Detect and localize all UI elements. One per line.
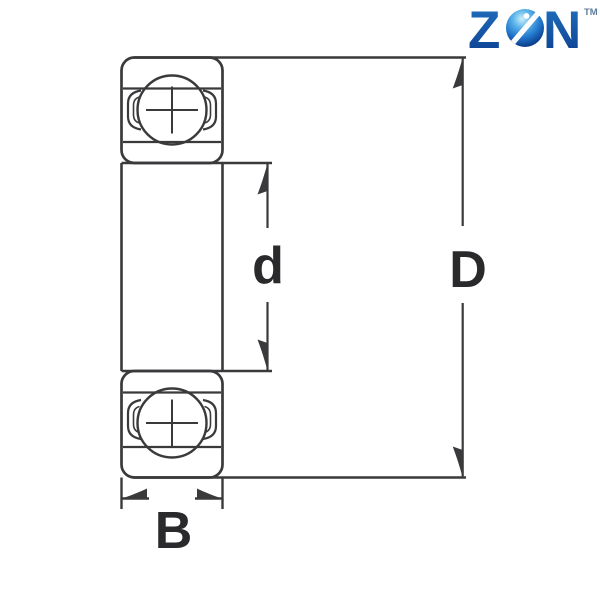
bearing-diagram-page: d D B Z N TM [0,0,600,600]
arrowhead-d-up-icon [258,164,268,195]
label-outer-diameter: D [449,241,487,299]
arrowhead-D-up-icon [453,58,463,89]
bearing-section-bottom [122,371,223,478]
extension-lines [122,58,467,510]
arrowhead-d-down-icon [258,340,268,371]
logo-letter-z: Z [468,1,499,60]
logo-trademark: TM [584,7,598,18]
dimension-bore-d: d [252,164,284,371]
dimension-outer-D: D [449,58,487,478]
bearing-section-top [122,58,223,164]
arrowhead-B-left-icon [122,489,147,499]
label-bore-diameter: d [252,237,284,295]
label-width: B [155,502,193,560]
arrowhead-B-right-icon [197,489,222,499]
bearing-diagram-canvas: d D B Z N TM [0,0,600,600]
zen-logo: Z N TM [468,1,598,60]
sphere-dot-icon [524,13,530,19]
arrowhead-D-down-icon [453,447,463,478]
dimension-width-B: B [121,489,223,561]
logo-letter-n: N [543,1,580,60]
